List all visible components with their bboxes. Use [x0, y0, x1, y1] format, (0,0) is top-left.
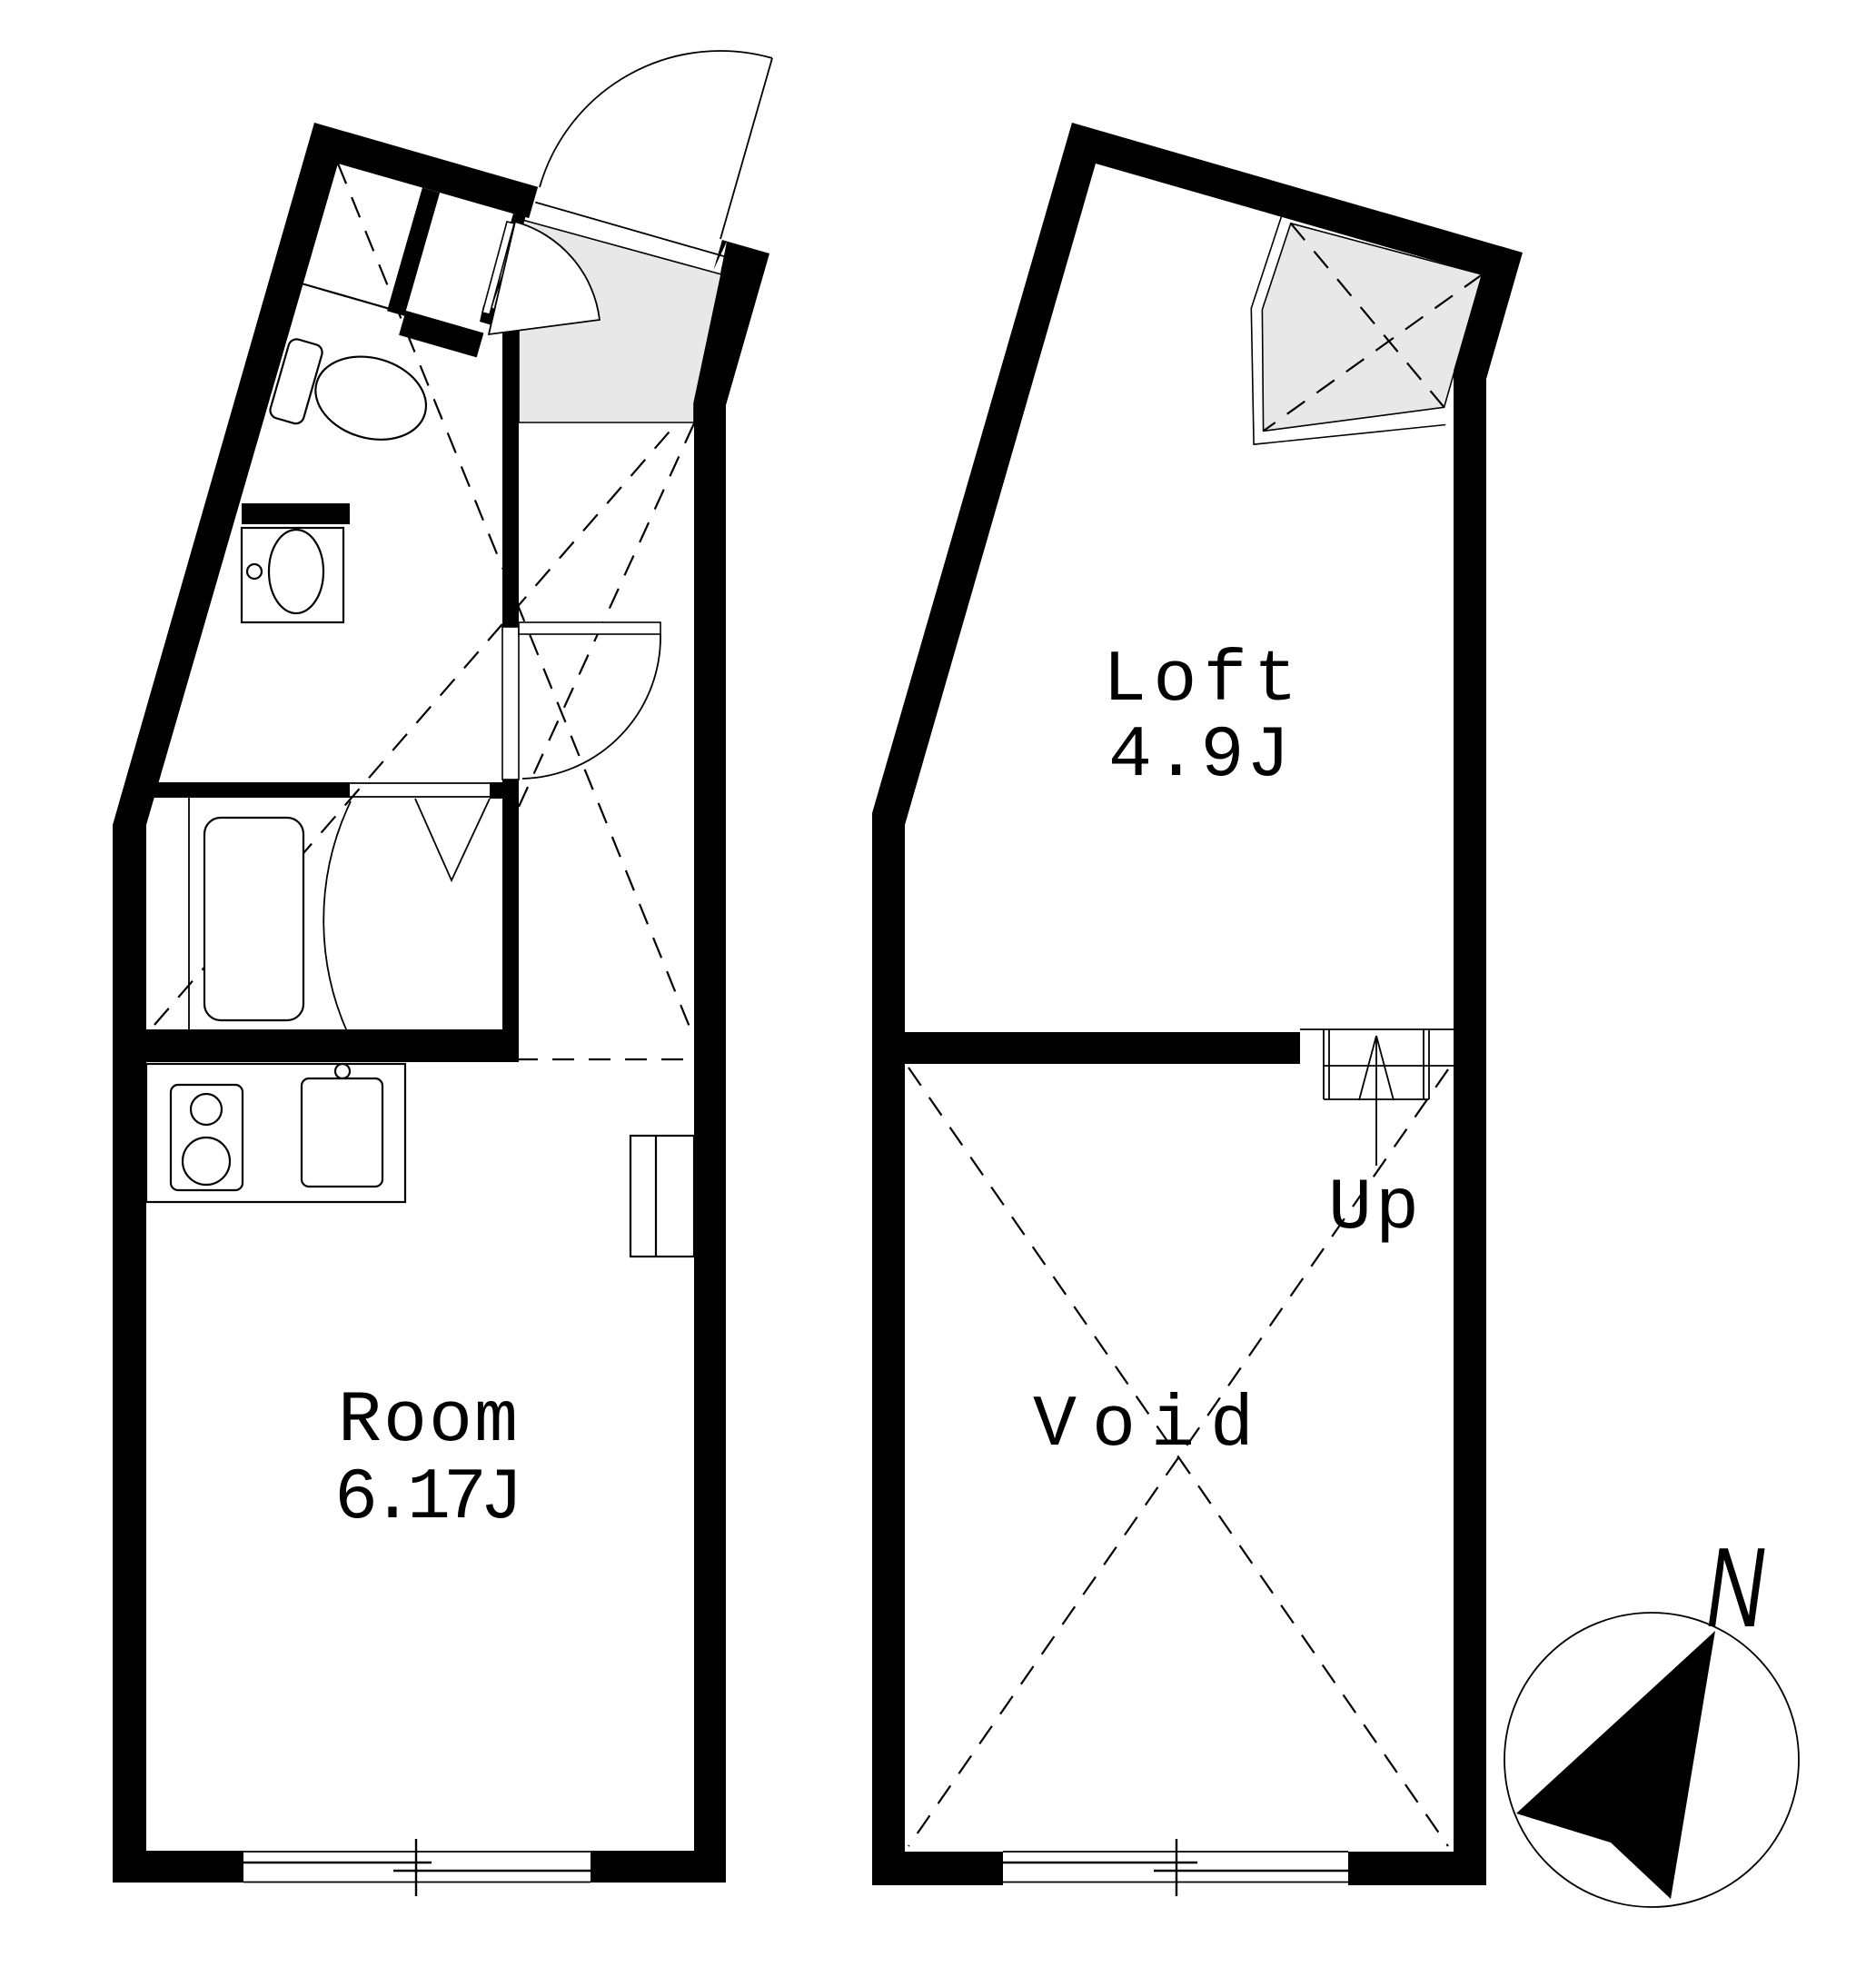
svg-text:Room: Room	[338, 1380, 518, 1463]
svg-text:6.17J: 6.17J	[334, 1457, 523, 1540]
svg-text:N: N	[1706, 1525, 1765, 1651]
